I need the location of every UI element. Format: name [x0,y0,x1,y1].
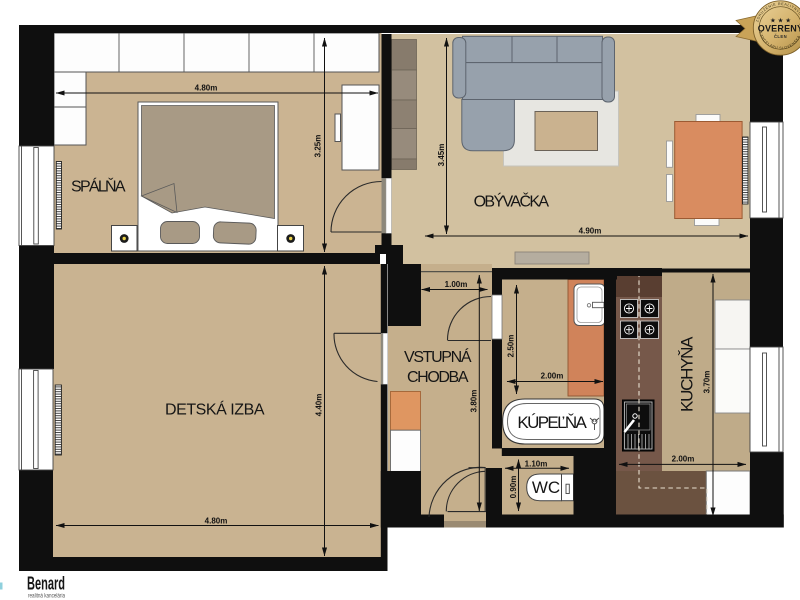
svg-text:realitná kancelária: realitná kancelária [28,593,65,600]
svg-text:VSTUPNÁ: VSTUPNÁ [404,347,472,366]
svg-text:ČLEN: ČLEN [774,34,787,39]
svg-text:4.80m: 4.80m [195,84,218,93]
svg-text:3.70m: 3.70m [703,371,712,394]
svg-text:1.10m: 1.10m [525,459,548,468]
svg-text:3.25m: 3.25m [314,135,323,158]
svg-text:3.45m: 3.45m [437,144,446,167]
svg-text:4.80m: 4.80m [205,517,228,526]
svg-text:0.90m: 0.90m [509,476,518,499]
svg-text:2.00m: 2.00m [672,455,695,464]
svg-text:DETSKÁ IZBA: DETSKÁ IZBA [165,400,265,419]
svg-text:4.40m: 4.40m [315,394,324,417]
svg-text:WC: WC [532,478,560,497]
svg-text:Benard: Benard [27,574,65,594]
svg-text:3.80m: 3.80m [470,390,479,413]
svg-text:1.00m: 1.00m [445,280,468,289]
svg-text:CHODBA: CHODBA [407,369,469,386]
svg-text:2.50m: 2.50m [507,335,516,358]
svg-text:4.90m: 4.90m [579,227,602,236]
svg-text:OVERENÝ: OVERENÝ [758,23,800,34]
svg-text:SPÁLŇA: SPÁLŇA [71,177,126,196]
svg-text:KÚPEĽŇA: KÚPEĽŇA [517,413,587,432]
svg-text:2.00m: 2.00m [541,372,564,381]
svg-text:KUCHYŇA: KUCHYŇA [678,336,697,412]
svg-text:OBÝVAČKA: OBÝVAČKA [474,192,550,211]
